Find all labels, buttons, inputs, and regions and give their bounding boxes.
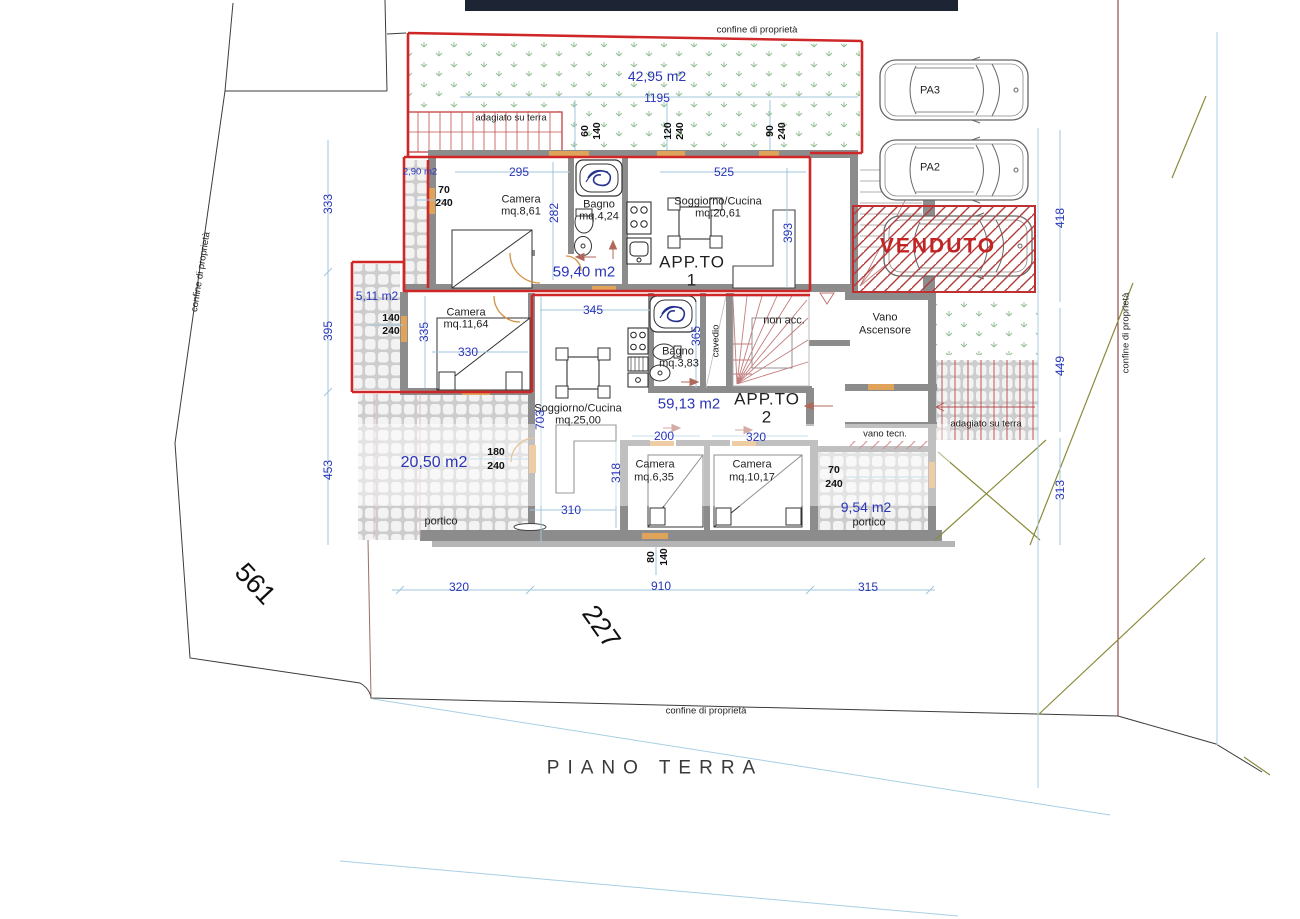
dim-315: 315: [858, 581, 878, 593]
non-acc-label: non acc.: [763, 316, 805, 327]
apt2-area: 59,13 m2: [658, 397, 721, 412]
apt2-camera3-label: Camera: [732, 460, 771, 471]
dim-335: 335: [418, 322, 430, 342]
dim-282: 282: [548, 203, 560, 223]
dim-pair-80: 80: [646, 551, 657, 563]
apt2-bagno-label: Bagno: [662, 347, 694, 358]
dim-320-bottom: 320: [449, 581, 469, 593]
confine-right-label: confine di proprietà: [1121, 293, 1131, 374]
apt2-soggiorno-mq: mq.25,00: [555, 416, 601, 427]
apt2-camera3-mq: mq.10,17: [729, 473, 775, 484]
dim-395: 395: [322, 321, 334, 341]
dim-pair-240f: 240: [825, 479, 843, 490]
dim-313: 313: [1054, 480, 1066, 500]
portico-right-area: 9,54 m2: [841, 500, 892, 514]
dim-703: 703: [534, 410, 546, 430]
dim-318: 318: [610, 463, 622, 483]
apt2-name: APP.TO: [734, 391, 800, 408]
portico-right-label: portico: [852, 518, 885, 529]
dim-320-mid: 320: [746, 431, 766, 443]
dim-449: 449: [1054, 356, 1066, 376]
vano-tecn-hatch: [850, 441, 928, 449]
dim-pair-70a: 70: [438, 185, 450, 196]
dim-pair-140a: 140: [592, 122, 603, 140]
dim-pair-140c: 140: [659, 548, 670, 566]
apt1-soggiorno-mq: mq.20,61: [695, 209, 741, 220]
vano-ascensore-line1: Vano: [873, 313, 898, 324]
apt1-bagno-mq: mq.4,24: [579, 212, 619, 223]
car-pa2: [880, 137, 1028, 203]
dim-333: 333: [322, 194, 334, 214]
apt1-num: 1: [687, 272, 697, 289]
portico-left-area: 20,50 m2: [401, 455, 468, 471]
dim-pair-60: 60: [580, 125, 591, 137]
dim-pair-240c: 240: [435, 198, 453, 209]
dim-pair-180: 180: [487, 447, 505, 458]
page-title: PIANO TERRA: [547, 759, 763, 778]
dim-418: 418: [1054, 208, 1066, 228]
apt1-name: APP.TO: [659, 254, 725, 271]
cavedio-label: cavedio: [711, 325, 721, 358]
dim-pair-70b: 70: [828, 465, 840, 476]
apt2-soggiorno-label: Soggiorno/Cucina: [534, 404, 621, 415]
plinth: [432, 541, 955, 547]
parking-pa3-label: PA3: [920, 86, 940, 97]
car-pa3: [880, 57, 1028, 123]
garden-area-label: 42,95 m2: [628, 69, 686, 83]
dim-453: 453: [322, 460, 334, 480]
adagiato-top-label: adagiato su terra: [475, 113, 546, 123]
apt2-camera2-mq: mq.6,35: [634, 473, 674, 484]
apt2-num: 2: [762, 409, 772, 426]
venduto-label: VENDUTO: [880, 236, 996, 257]
dim-200: 200: [654, 430, 674, 442]
dim-pair-90: 90: [765, 125, 776, 137]
dim-pair-240e: 240: [487, 461, 505, 472]
parking-pa2-label: PA2: [920, 163, 940, 174]
confine-bottom-label: confine di proprietà: [666, 706, 747, 716]
dim-pair-240a: 240: [675, 122, 686, 140]
apt2-camera1-mq: mq.11,64: [443, 320, 488, 331]
dim-525: 525: [714, 166, 734, 178]
dim-310: 310: [561, 504, 581, 516]
area-511: 5,11 m2: [356, 290, 398, 302]
apt2-bagno-mq: mq.3,83: [659, 359, 699, 370]
apt1-area: 59,40 m2: [553, 265, 616, 280]
apt1-bagno-label: Bagno: [583, 200, 615, 211]
dim-295: 295: [509, 166, 529, 178]
apt1-camera-mq: mq.8,61: [501, 207, 541, 218]
dim-330: 330: [458, 346, 478, 358]
top-dark-bar: [465, 0, 958, 11]
dim-pair-120: 120: [663, 122, 674, 140]
apt2-camera1-label: Camera: [446, 308, 485, 319]
confine-top-label: confine di proprietà: [717, 25, 798, 35]
dim-345: 345: [583, 304, 603, 316]
apt2-camera2-label: Camera: [635, 460, 674, 471]
area-290: 2,90 m2: [403, 167, 437, 177]
adagiato-right-label: adagiato su terra: [950, 419, 1021, 429]
dim-910: 910: [651, 580, 671, 592]
dim-pair-140b: 140: [382, 313, 400, 324]
portico-left-label: portico: [424, 517, 457, 528]
vano-ascensore-line2: Ascensore: [859, 326, 911, 337]
dim-393: 393: [782, 223, 794, 243]
floor-plan-page: confine di proprietà confine di propriet…: [0, 0, 1300, 919]
stair-internal: [733, 296, 809, 386]
dim-pair-240d: 240: [382, 326, 400, 337]
dim-pair-240b: 240: [777, 122, 788, 140]
vano-tecn-label: vano tecn.: [863, 429, 907, 439]
dim-365: 365: [690, 326, 702, 346]
dim-1195: 1195: [644, 92, 670, 104]
apt1-camera-label: Camera: [501, 195, 540, 206]
apt1-soggiorno-label: Soggiorno/Cucina: [674, 197, 761, 208]
